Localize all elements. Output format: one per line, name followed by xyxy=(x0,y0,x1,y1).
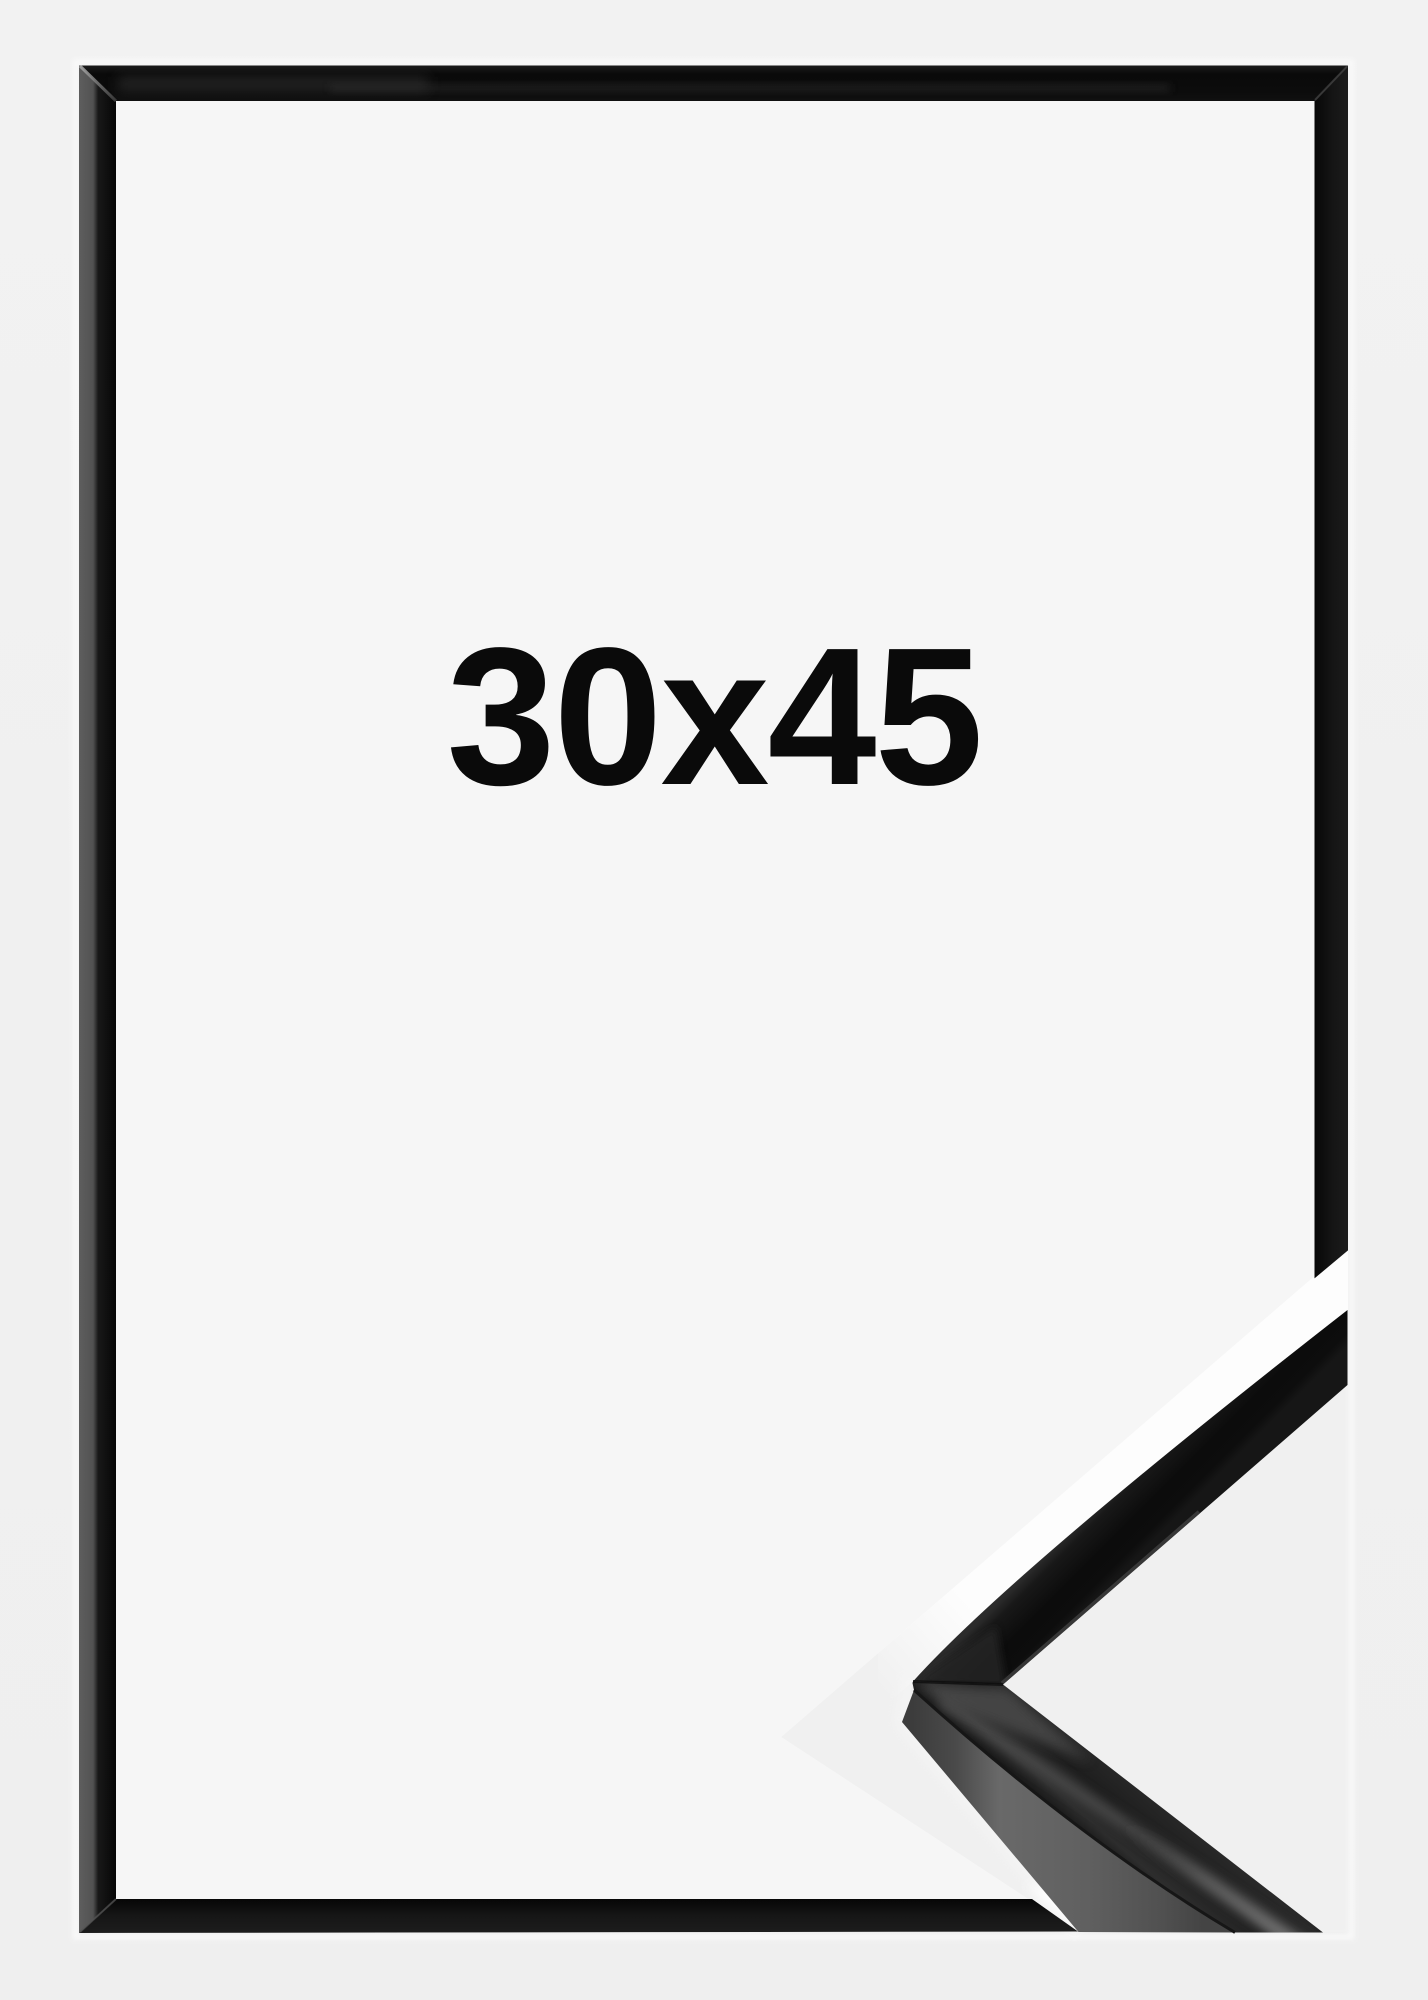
svg-text:30x45: 30x45 xyxy=(446,607,981,826)
